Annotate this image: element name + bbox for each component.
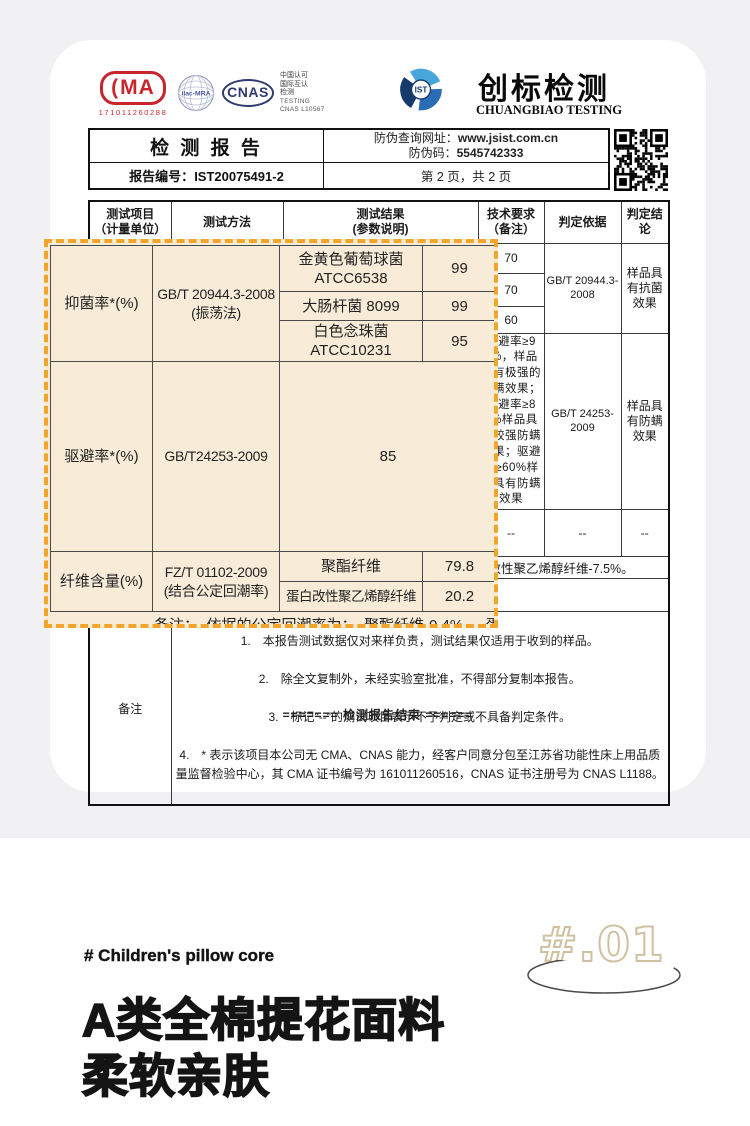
test-value: 99: [423, 292, 497, 321]
col-header-conclusion: 判定结论: [621, 201, 669, 243]
test-item: 驱避率*(%): [51, 362, 153, 552]
judgment-conclusion: --: [621, 510, 669, 557]
antifake-code-line: 防伪码：5545742333: [409, 146, 524, 161]
accreditation-line: TESTING: [280, 98, 340, 107]
section-title-line1: A类全棉提花面料: [82, 992, 445, 1048]
ilac-mra-logo: ilac-MRA: [177, 74, 215, 117]
judgment-basis: --: [544, 510, 621, 557]
highlight-partial-remark: 备注： 依据的公定回潮率为： 聚酯纤维-0.4%， 蛋白改性聚: [154, 614, 498, 628]
test-param: 聚酯纤维: [280, 552, 423, 582]
col-header-requirement: 技术要求 （备注）: [478, 201, 544, 243]
test-item: 抑菌率*(%): [51, 246, 153, 362]
judgment-conclusion: 样品具有防螨效果: [621, 333, 669, 510]
accreditation-text: 中国认可 国际互认 检测 TESTING CNAS L10567: [280, 72, 340, 115]
table-header-row: 测试项目 （计量单位） 测试方法 测试结果 (参数说明) 技术要求 （备注） 判…: [89, 201, 669, 243]
cma-number: 171011260288: [92, 108, 174, 117]
cma-logo: MA: [100, 71, 166, 105]
badge-ellipse-sketch: [524, 960, 684, 1000]
report-end-line: ======= 检测报告结束 ======: [88, 706, 668, 723]
report-title: 检 测 报 告: [150, 133, 263, 160]
highlight-box: 抑菌率*(%) GB/T 20944.3-2008 (振荡法) 金黄色葡萄球菌 …: [44, 239, 498, 628]
accreditation-line: 中国认可: [280, 72, 340, 81]
judgment-conclusion: 样品具有抗菌效果: [621, 243, 669, 333]
test-value: 79.8: [423, 552, 497, 582]
judgment-basis: GB/T 20944.3-2008: [544, 243, 621, 333]
test-method: FZ/T 01102-2009 (结合公定回潮率): [153, 552, 280, 612]
antifake-code-label: 防伪码：: [409, 146, 457, 160]
col-header-method: 测试方法: [171, 201, 283, 243]
section-title: A类全棉提花面料 柔软亲肤: [82, 992, 445, 1104]
accreditation-line: 国际互认: [280, 81, 340, 90]
section-title-line2: 柔软亲肤: [82, 1048, 445, 1104]
note-4: 4. * 表示该项目本公司无 CMA、CNAS 能力，经客户同意分包至江苏省功能…: [174, 746, 667, 784]
test-item: 纤维含量(%): [51, 552, 153, 612]
highlight-row: 驱避率*(%) GB/T24253-2009 85: [51, 362, 497, 552]
note-2: 2. 除全文复制外，未经实验室批准，不得部分复制本报告。: [174, 670, 667, 689]
note-1: 1. 本报告测试数据仅对来样负责，测试结果仅适用于收到的样品。: [174, 632, 667, 651]
col-header-result: 测试结果 (参数说明): [283, 201, 478, 243]
test-value: 85: [280, 362, 497, 552]
test-param: 蛋白改性聚乙烯醇纤维: [280, 582, 423, 612]
section-tag: # Children's pillow core: [84, 946, 274, 966]
report-number-value: IST20075491-2: [194, 169, 284, 184]
highlight-row: 纤维含量(%) FZ/T 01102-2009 (结合公定回潮率) 聚酯纤维 7…: [51, 552, 497, 582]
qr-code: [614, 129, 668, 191]
brand-name-cn: 创标检测: [478, 64, 668, 108]
globe-icon: ilac-MRA: [177, 74, 215, 112]
accreditation-line: CNAS L10567: [280, 106, 340, 115]
test-method: GB/T 20944.3-2008 (振荡法): [153, 246, 280, 362]
page: MA 171011260288 ilac-MRA CNAS 中国认可 国际互认 …: [0, 0, 750, 1126]
cnas-label: CNAS: [227, 84, 269, 100]
col-header-basis: 判定依据: [544, 201, 621, 243]
test-method: GB/T24253-2009: [153, 362, 280, 552]
ist-label: IST: [415, 86, 428, 95]
test-param: 金黄色葡萄球菌 ATCC6538: [280, 246, 423, 292]
test-param: 白色念珠菌 ATCC10231: [280, 321, 423, 362]
cma-label: MA: [120, 76, 155, 99]
col-header-item: 测试项目 （计量单位）: [89, 201, 171, 243]
report-number-label: 报告编号：: [129, 169, 194, 184]
test-value: 20.2: [423, 582, 497, 612]
report-number: 报告编号：IST20075491-2: [129, 166, 284, 185]
brand-name-en: CHUANGBIAO TESTING: [476, 103, 666, 118]
ilac-label: ilac-MRA: [181, 91, 210, 98]
accreditation-line: 检测: [280, 89, 340, 98]
antifake-url: www.jsist.com.cn: [458, 131, 558, 145]
cnas-logo: CNAS: [222, 79, 274, 107]
test-value: 95: [423, 321, 497, 362]
antifake-code: 5545742333: [457, 146, 524, 160]
test-value: 99: [423, 246, 497, 292]
ist-logo: IST: [398, 63, 444, 123]
highlight-row: 抑菌率*(%) GB/T 20944.3-2008 (振荡法) 金黄色葡萄球菌 …: [51, 246, 497, 292]
judgment-basis: GB/T 24253-2009: [544, 333, 621, 510]
ist-swirl-icon: IST: [398, 63, 444, 118]
report-header-box: 检 测 报 告 防伪查询网址：www.jsist.com.cn 防伪码：5545…: [88, 128, 610, 190]
test-param: 大肠杆菌 8099: [280, 292, 423, 321]
highlight-table: 抑菌率*(%) GB/T 20944.3-2008 (振荡法) 金黄色葡萄球菌 …: [50, 245, 497, 612]
antifake-url-line: 防伪查询网址：www.jsist.com.cn: [374, 131, 558, 146]
page-info: 第 2 页，共 2 页: [421, 166, 511, 185]
antifake-url-label: 防伪查询网址：: [374, 131, 458, 145]
